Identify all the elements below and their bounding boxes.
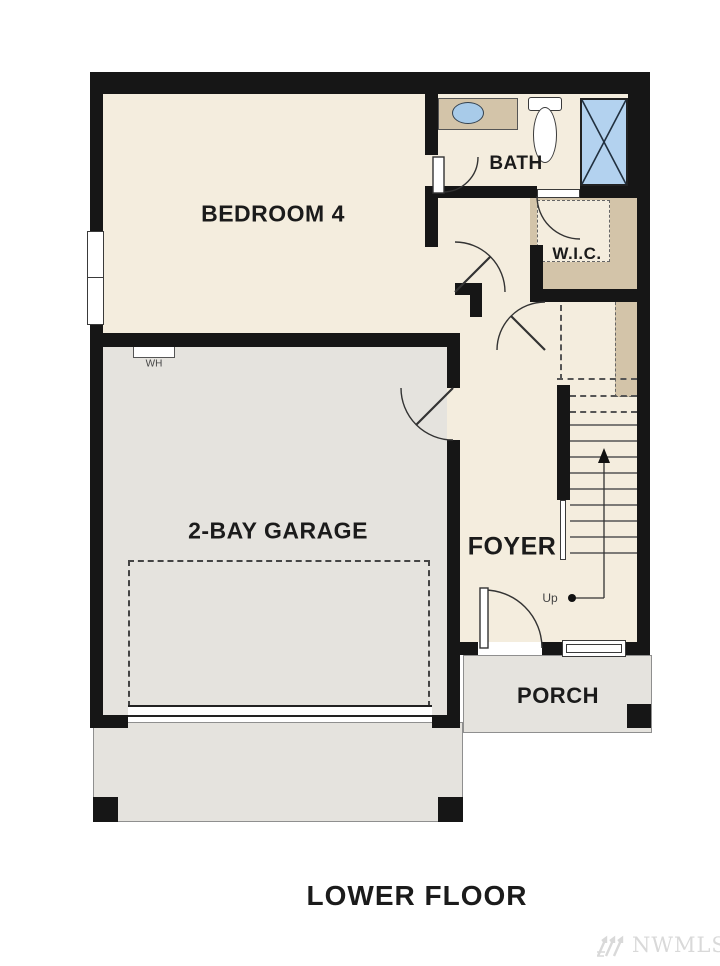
overhead-dash-vertical [560, 305, 562, 380]
floor-plan: BEDROOM 4 BATH W.I.C. 2-BAY GARAGE FOYER… [0, 0, 720, 966]
room-label-bedroom4: BEDROOM 4 [201, 201, 345, 228]
foyer-window-inner [566, 644, 622, 653]
wall-bath-left-upper [425, 72, 438, 155]
wall-top [90, 72, 650, 94]
wall-foyer-front-b [542, 642, 562, 655]
room-label-porch: PORCH [517, 683, 599, 709]
stair-rail [560, 500, 566, 560]
overhead-dash-2 [570, 395, 637, 397]
room-label-wic: W.I.C. [552, 244, 601, 264]
overhead-dash-3 [570, 411, 637, 413]
wall-right-shower [628, 72, 650, 198]
wall-bath-bottom-right [580, 186, 650, 198]
wic-cased-opening [537, 189, 580, 198]
wall-hall-stub-h [455, 283, 482, 295]
wall-garage-right-upper [447, 347, 460, 388]
wall-garage-front-right [432, 715, 460, 728]
garage-door-clearance [128, 560, 430, 707]
driveway-apron [93, 722, 463, 822]
sink-icon [452, 102, 484, 124]
driveway-post-left [93, 797, 118, 822]
stairs-up-label: Up [542, 591, 557, 605]
wall-bath-left-lower [425, 192, 438, 247]
wall-left-lower [90, 325, 103, 728]
page-title: LOWER FLOOR [307, 880, 528, 912]
stair-overhead-shelf [615, 302, 637, 397]
bedroom-window [87, 231, 104, 325]
driveway-post-right [438, 797, 463, 822]
room-label-foyer: FOYER [468, 533, 557, 562]
bedroom-window-divider [87, 277, 104, 278]
wall-garage-front-left [90, 715, 128, 728]
wall-garage-right-lower [447, 440, 460, 715]
room-label-garage: 2-BAY GARAGE [188, 518, 368, 545]
watermark-text: NWMLS [632, 933, 720, 957]
wall-bedroom-garage [90, 333, 460, 347]
wall-stair-left [557, 385, 570, 500]
watermark: NWMLS [596, 932, 720, 958]
wall-foyer-front-a [447, 642, 478, 655]
porch-post [627, 704, 651, 728]
wall-hall-stub-v [470, 295, 482, 317]
wall-left-upper [90, 72, 103, 231]
shower-icon [580, 98, 628, 186]
overhead-dash-1 [557, 378, 637, 380]
water-heater-label: WH [146, 359, 163, 370]
room-label-bath: BATH [489, 153, 542, 175]
wall-wic-bottom [530, 289, 650, 302]
wall-bath-bottom-left [425, 186, 537, 198]
garage-overhead-door [128, 705, 432, 717]
nwmls-logo-icon [596, 932, 630, 958]
wall-foyer-front-c [626, 642, 650, 655]
